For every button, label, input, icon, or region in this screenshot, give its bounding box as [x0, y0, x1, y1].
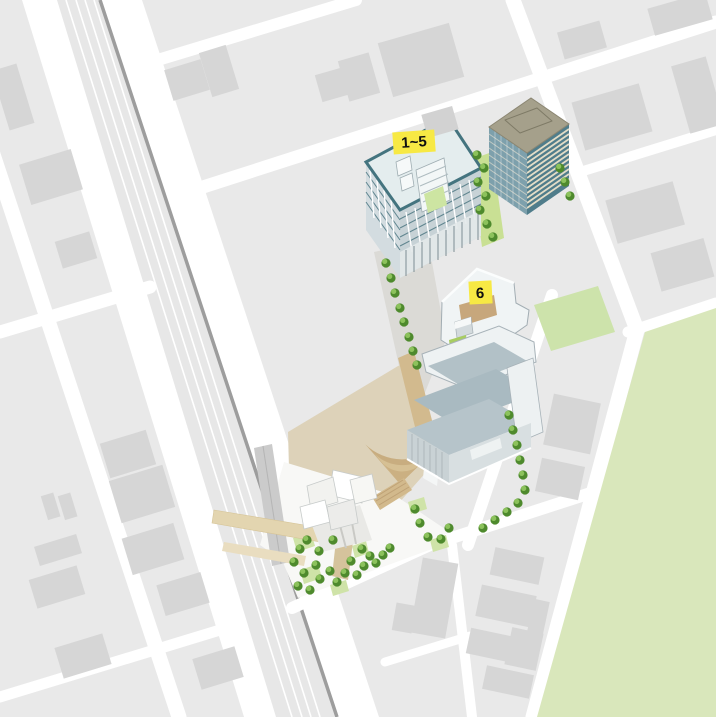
marker-building-6: 6 — [468, 280, 492, 304]
tree-icon — [295, 544, 304, 553]
tree-icon — [332, 577, 341, 586]
tree-icon — [305, 585, 314, 594]
tree-icon — [299, 568, 308, 577]
tree-icon — [390, 288, 399, 297]
marker-label: 1~5 — [401, 133, 428, 152]
tree-icon — [565, 191, 574, 200]
tree-icon — [473, 177, 482, 186]
tree-icon — [386, 273, 395, 282]
site-map-svg: 1~5 6 — [0, 0, 716, 717]
tree-icon — [359, 561, 368, 570]
tree-icon — [502, 507, 511, 516]
tree-icon — [314, 546, 323, 555]
tree-icon — [395, 303, 404, 312]
marker-label: 6 — [475, 285, 484, 302]
tree-icon — [346, 556, 355, 565]
tree-icon — [385, 543, 394, 552]
tree-icon — [378, 550, 387, 559]
tree-icon — [412, 360, 421, 369]
tree-icon — [436, 534, 445, 543]
tree-icon — [381, 258, 390, 267]
tree-icon — [513, 498, 522, 507]
tree-icon — [444, 523, 453, 532]
tree-icon — [478, 523, 487, 532]
tree-icon — [488, 232, 497, 241]
tree-icon — [555, 163, 564, 172]
tree-icon — [512, 440, 521, 449]
tree-icon — [311, 560, 320, 569]
tree-icon — [365, 551, 374, 560]
tree-icon — [515, 455, 524, 464]
tree-icon — [328, 535, 337, 544]
tree-icon — [404, 332, 413, 341]
tree-icon — [371, 558, 380, 567]
tree-icon — [340, 568, 349, 577]
tree-icon — [357, 544, 366, 553]
tree-icon — [415, 518, 424, 527]
tree-icon — [479, 163, 488, 172]
tree-icon — [520, 485, 529, 494]
tree-icon — [490, 515, 499, 524]
tree-icon — [560, 177, 569, 186]
tree-icon — [423, 532, 432, 541]
tree-icon — [289, 557, 298, 566]
tree-icon — [325, 566, 334, 575]
tree-icon — [293, 581, 302, 590]
canopy-panel — [350, 474, 377, 504]
tree-icon — [399, 317, 408, 326]
tree-icon — [352, 570, 361, 579]
tree-icon — [410, 504, 419, 513]
tree-icon — [472, 150, 481, 159]
site-map-illustration: 1~5 6 — [0, 0, 716, 717]
tree-icon — [508, 425, 517, 434]
tree-icon — [518, 470, 527, 479]
tree-icon — [504, 410, 513, 419]
tree-icon — [408, 346, 417, 355]
tree-icon — [475, 205, 484, 214]
marker-buildings-1-5: 1~5 — [392, 130, 435, 155]
tree-icon — [315, 574, 324, 583]
tree-icon — [302, 535, 311, 544]
tree-icon — [482, 219, 491, 228]
tree-icon — [481, 191, 490, 200]
